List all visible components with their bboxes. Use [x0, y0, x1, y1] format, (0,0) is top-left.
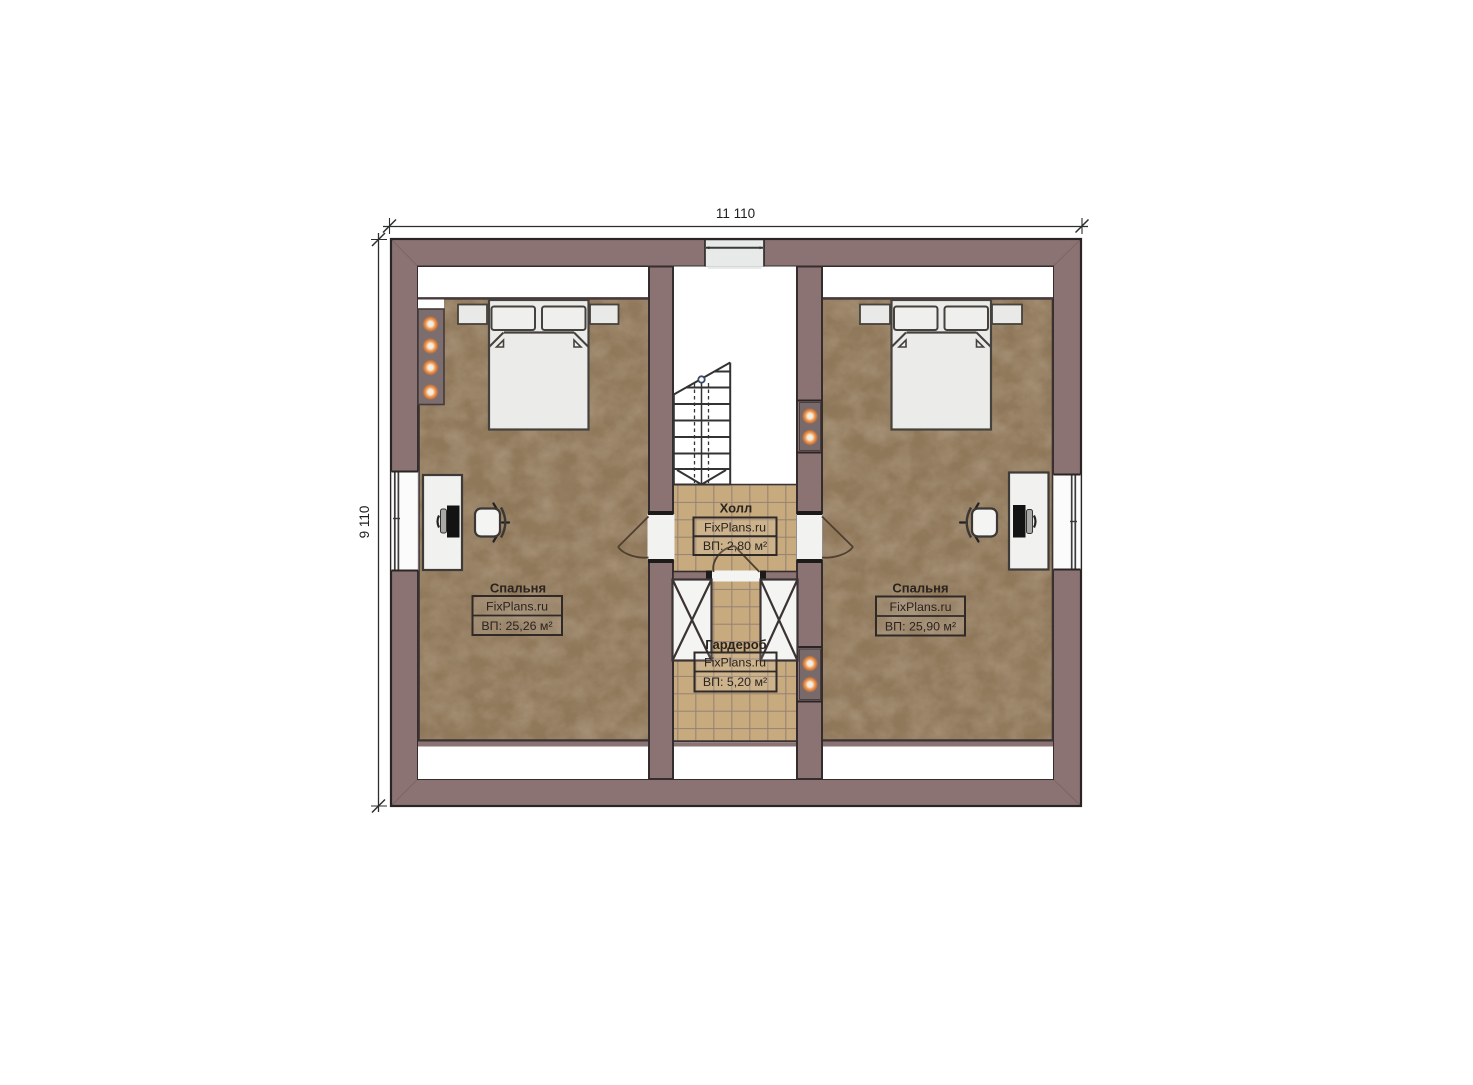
svg-text:FixPlans.ru: FixPlans.ru: [486, 600, 548, 614]
svg-text:FixPlans.ru: FixPlans.ru: [704, 521, 766, 535]
svg-text:Спальня: Спальня: [490, 581, 546, 596]
svg-text:ВП: 25,26 м²: ВП: 25,26 м²: [481, 619, 552, 633]
svg-text:FixPlans.ru: FixPlans.ru: [704, 656, 766, 670]
svg-text:Спальня: Спальня: [892, 581, 948, 596]
svg-text:FixPlans.ru: FixPlans.ru: [890, 600, 952, 614]
svg-text:Гардероб: Гардероб: [705, 637, 766, 652]
svg-text:11 110: 11 110: [716, 206, 755, 221]
svg-text:9 110: 9 110: [357, 506, 372, 539]
svg-text:Холл: Холл: [720, 501, 753, 516]
svg-text:ВП: 25,90 м²: ВП: 25,90 м²: [885, 620, 956, 634]
svg-text:ВП: 2,80 м²: ВП: 2,80 м²: [703, 539, 767, 553]
svg-text:ВП: 5,20 м²: ВП: 5,20 м²: [703, 675, 767, 689]
